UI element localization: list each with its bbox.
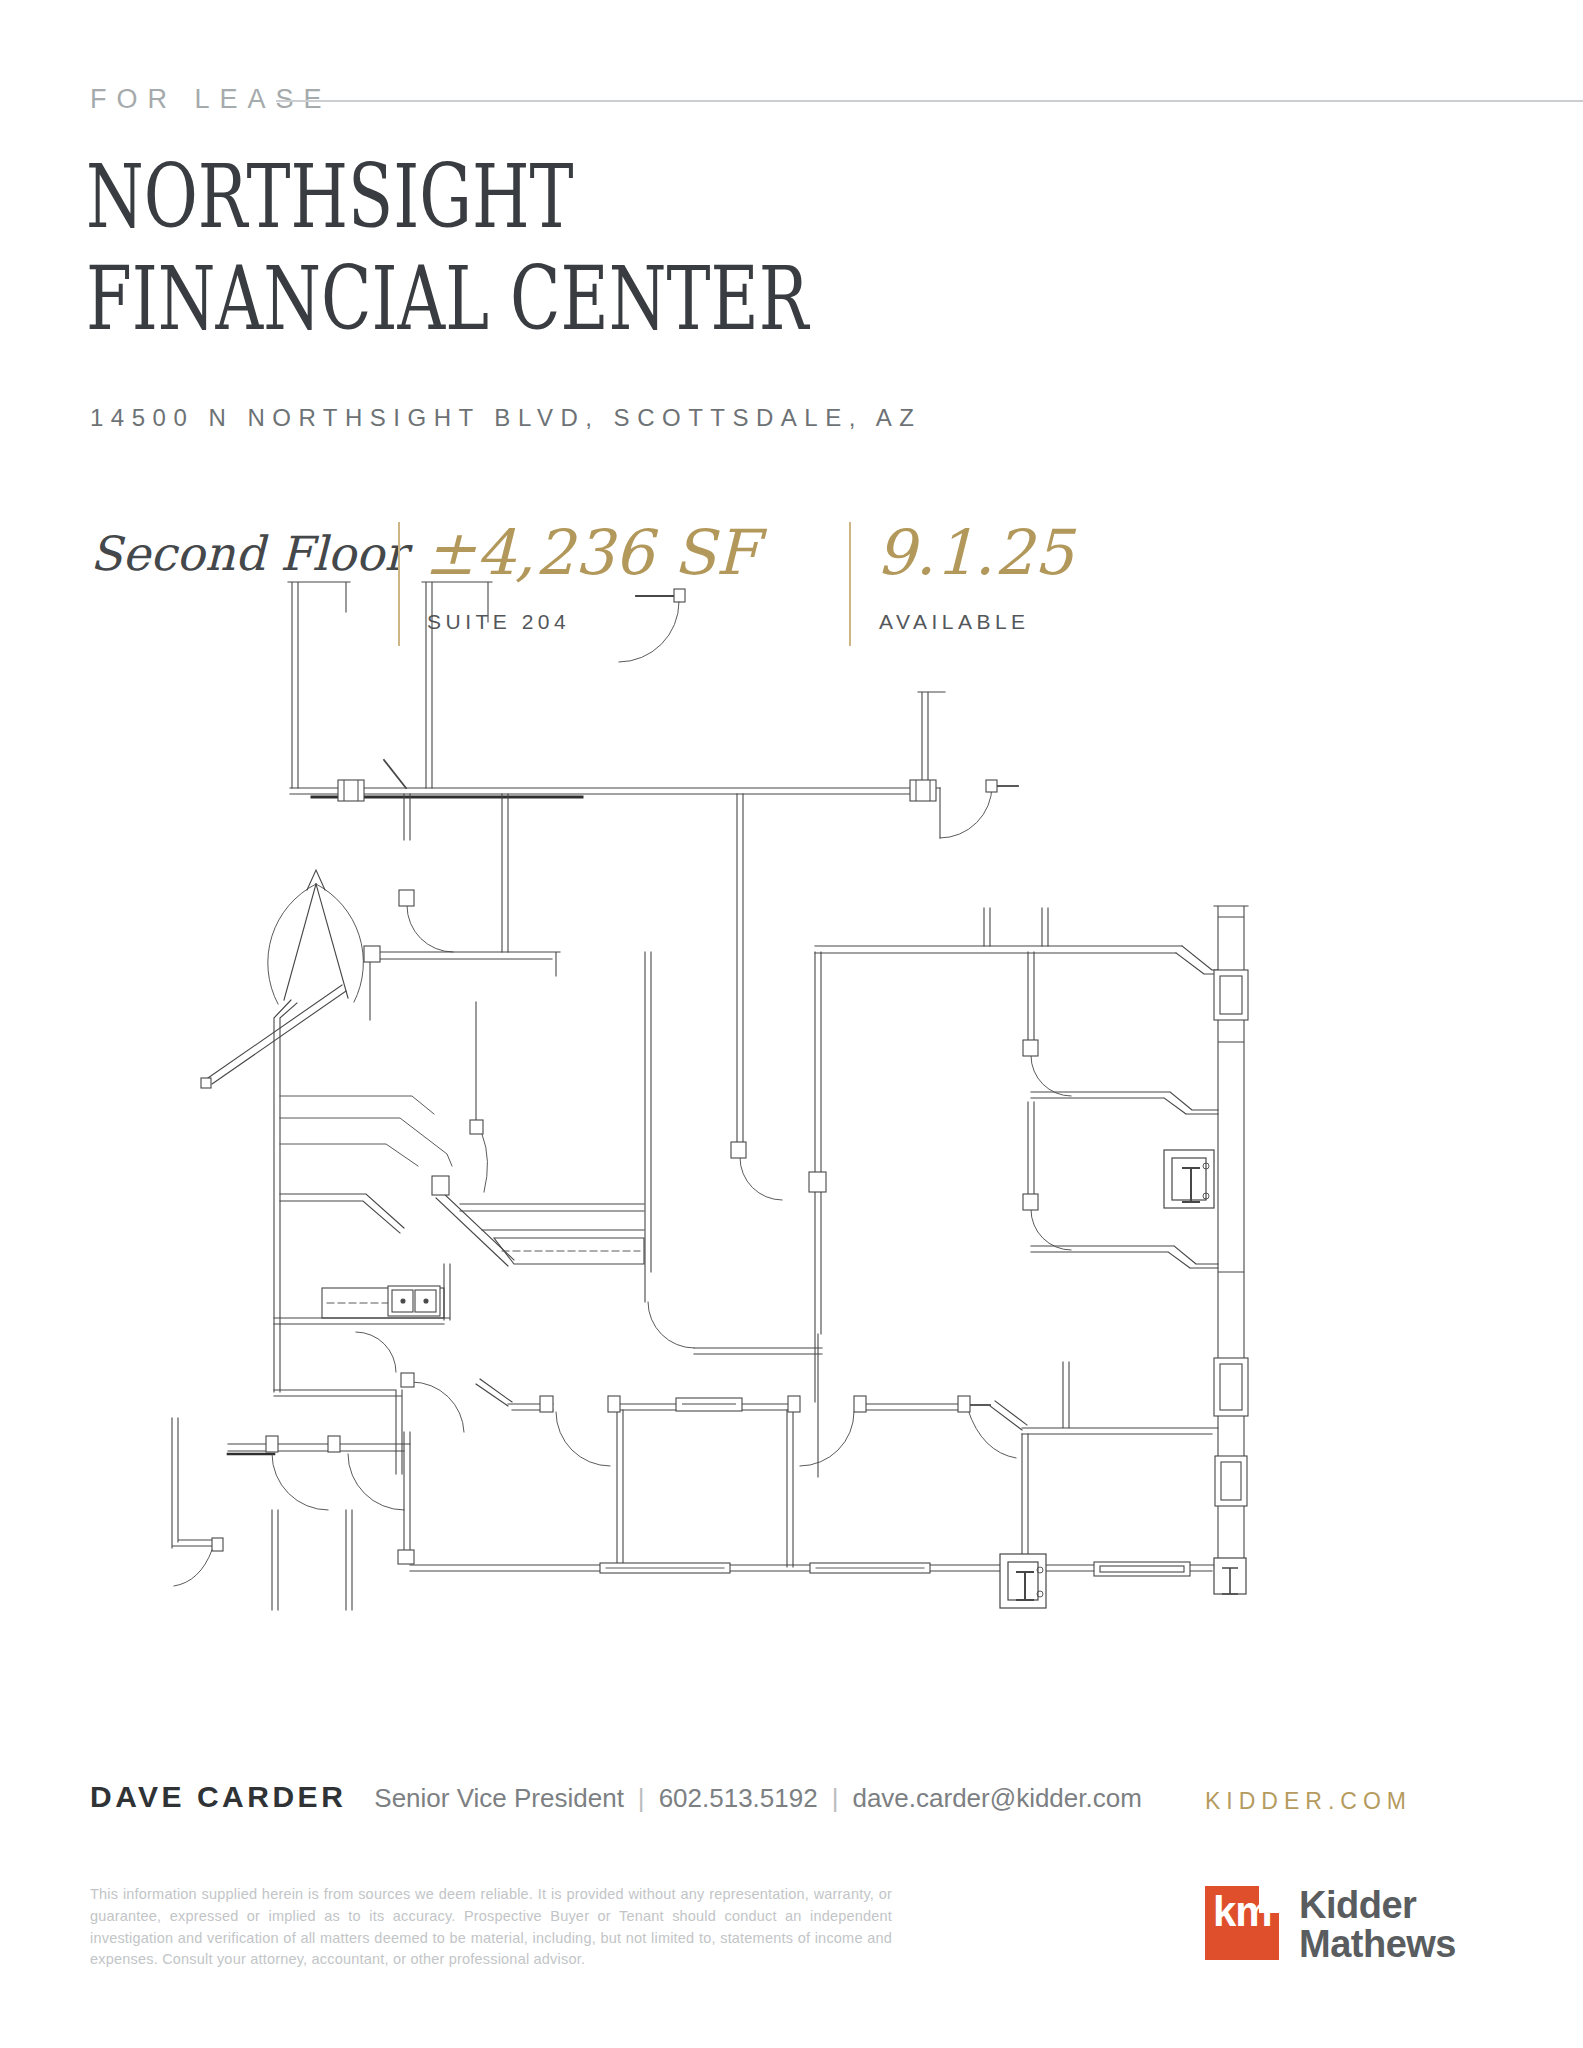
wordmark-line2: Mathews bbox=[1299, 1925, 1456, 1964]
floor-plan-drawing bbox=[170, 572, 1260, 1652]
property-title: NORTHSIGHT FINANCIAL CENTER bbox=[86, 146, 808, 350]
flyer-page: FOR LEASE NORTHSIGHT FINANCIAL CENTER 14… bbox=[0, 0, 1583, 2048]
broker-email[interactable]: dave.carder@kidder.com bbox=[852, 1783, 1141, 1813]
broker-contact-row: DAVE CARDERSenior Vice President|602.513… bbox=[90, 1780, 1142, 1814]
broker-title: Senior Vice President bbox=[374, 1783, 624, 1813]
property-title-line2: FINANCIAL CENTER bbox=[86, 248, 808, 350]
kidder-website-link[interactable]: KIDDER.COM bbox=[1205, 1788, 1412, 1815]
wordmark-line1: Kidder bbox=[1299, 1886, 1456, 1925]
broker-name: DAVE CARDER bbox=[90, 1780, 346, 1813]
property-title-line1: NORTHSIGHT bbox=[86, 146, 808, 248]
km-logo-notch bbox=[1259, 1886, 1279, 1913]
km-logo-mark: km bbox=[1205, 1886, 1279, 1960]
eyebrow-rule bbox=[276, 100, 1583, 102]
contact-separator-2: | bbox=[818, 1783, 853, 1813]
contact-separator-1: | bbox=[624, 1783, 659, 1813]
property-address: 14500 N NORTHSIGHT BLVD, SCOTTSDALE, AZ bbox=[90, 404, 921, 432]
legal-disclaimer: This information supplied herein is from… bbox=[90, 1884, 892, 1971]
kidder-mathews-logo: km Kidder Mathews bbox=[1205, 1886, 1456, 1964]
broker-phone[interactable]: 602.513.5192 bbox=[659, 1783, 818, 1813]
kidder-mathews-wordmark: Kidder Mathews bbox=[1299, 1886, 1456, 1964]
